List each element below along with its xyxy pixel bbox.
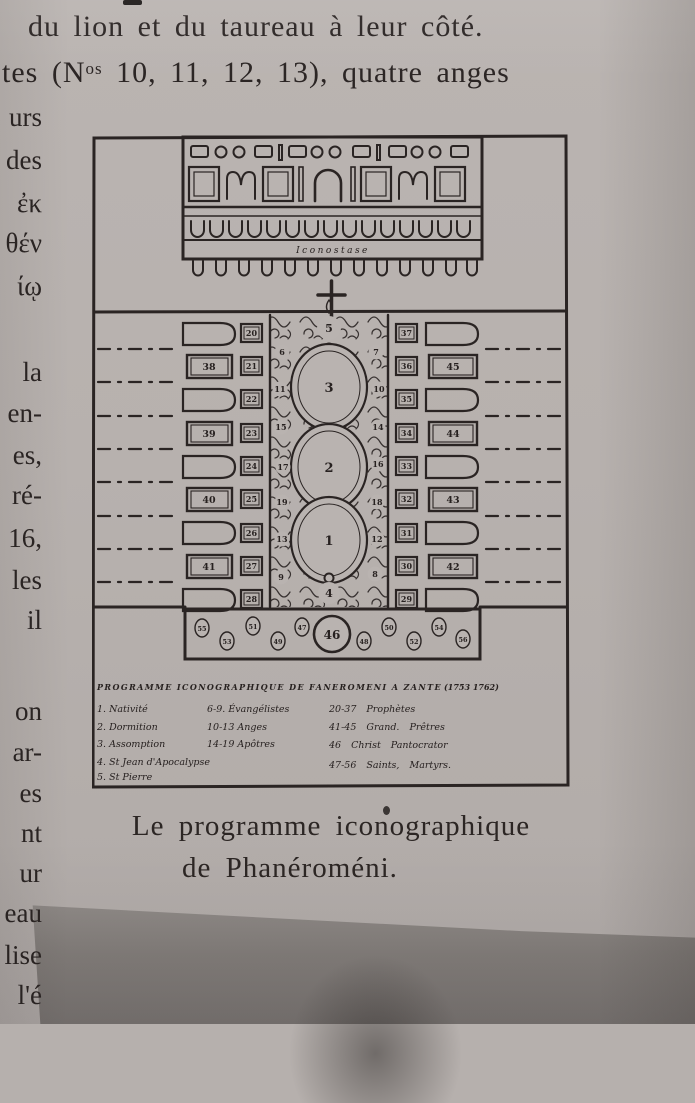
svg-text:30: 30 <box>401 561 413 571</box>
margin-fragment: θέν <box>6 228 42 259</box>
legend-years: (1753 1762) <box>444 682 499 692</box>
svg-text:20: 20 <box>246 328 258 338</box>
svg-text:45: 45 <box>446 362 459 373</box>
svg-text:34: 34 <box>401 428 413 438</box>
legend-entry: 2. Dormition <box>96 722 158 733</box>
left-inner-column: 20 21 22 23 24 25 26 27 28 <box>241 324 262 608</box>
figure-caption-line-1: Le programme iconographique <box>96 810 566 843</box>
text-line: 10, 11, 12, 13), quatre anges <box>103 56 510 89</box>
prophet-box: 22 <box>241 390 262 408</box>
prophet-box: 32 <box>396 490 417 508</box>
margin-fragment: on <box>15 696 42 727</box>
svg-text:33: 33 <box>401 461 413 471</box>
figure-legend: PROGRAMME ICONOGRAPHIQUE DE FANEROMENI A… <box>96 682 499 783</box>
figure-caption-line-2: de Phanéroméni. <box>100 852 480 885</box>
margin-fragment: eau <box>5 898 42 929</box>
margin-fragment: en- <box>8 398 42 429</box>
iconographic-diagram: Iconostase <box>92 134 570 792</box>
prophet-box: 34 <box>396 424 417 442</box>
grand-pretre-box: 40 <box>187 488 232 511</box>
svg-text:53: 53 <box>222 638 232 646</box>
legend-entry: 10-13 Anges <box>207 722 267 733</box>
svg-text:56: 56 <box>458 636 468 644</box>
margin-fragment: ré- <box>12 480 42 511</box>
legend-entry: 3. Assomption <box>97 739 165 750</box>
svg-text:50: 50 <box>384 624 394 632</box>
margin-fragment: ur <box>20 858 43 889</box>
svg-text:47: 47 <box>297 624 306 632</box>
svg-text:40: 40 <box>202 495 216 506</box>
iconostasis-top-row <box>191 145 468 160</box>
prophet-box: 37 <box>396 324 417 342</box>
text-line: du lion et du taureau à leur côté. <box>28 10 484 43</box>
prophet-box: 20 <box>241 324 262 342</box>
bottom-shadow-blob <box>283 948 468 1103</box>
svg-text:41: 41 <box>202 562 215 573</box>
ordinal-superscript: os <box>85 59 102 78</box>
svg-text:55: 55 <box>197 625 207 633</box>
svg-text:15: 15 <box>275 422 286 432</box>
pantocrator-medallion: 46 <box>314 616 350 652</box>
margin-fragment: 16, <box>8 523 42 554</box>
margin-fragment: nt <box>21 818 42 849</box>
prophet-box: 28 <box>241 590 262 608</box>
svg-text:49: 49 <box>273 638 283 646</box>
nave-strip: 5 3 2 1 4 6 11 15 17 19 13 9 7 10 14 16 … <box>270 300 388 607</box>
svg-text:52: 52 <box>409 638 418 646</box>
legend-entry: 47-56 Saints, Martyrs. <box>328 760 451 771</box>
prophet-box: 27 <box>241 557 262 575</box>
iconostasis-icon-row <box>189 167 465 201</box>
svg-text:54: 54 <box>434 624 444 632</box>
grand-pretre-box: 42 <box>429 555 477 578</box>
margin-fragment: es, <box>13 440 42 471</box>
legend-entry: 5. St Pierre <box>97 772 153 783</box>
legend-entry: 46 Christ Pantocrator <box>328 740 449 751</box>
svg-text:39: 39 <box>202 429 216 440</box>
legend-entry: 4. St Jean d'Apocalypse <box>96 757 210 768</box>
svg-text:29: 29 <box>401 594 413 604</box>
pendant-fringe <box>193 261 477 276</box>
margin-fragment: la <box>23 357 43 388</box>
svg-text:6: 6 <box>279 347 285 357</box>
photographed-book-page: { "page": { "top_lines": { "line1": "du … <box>0 0 695 1024</box>
svg-text:51: 51 <box>248 623 257 631</box>
grand-pretre-box: 44 <box>429 422 477 445</box>
svg-text:10: 10 <box>373 384 385 394</box>
svg-text:21: 21 <box>246 361 257 371</box>
prophet-box: 30 <box>396 557 417 575</box>
svg-text:23: 23 <box>246 428 258 438</box>
photo-background: du lion et du taureau à leur côté. tes (… <box>0 0 695 1024</box>
svg-text:44: 44 <box>446 429 460 440</box>
prophet-box: 35 <box>396 390 417 408</box>
iconostasis-label: Iconostase <box>295 246 370 256</box>
svg-text:35: 35 <box>401 394 412 404</box>
svg-text:36: 36 <box>401 361 413 371</box>
margin-fragment: ἐκ <box>17 188 42 219</box>
svg-text:9: 9 <box>278 572 284 582</box>
svg-text:26: 26 <box>246 528 258 538</box>
svg-text:7: 7 <box>373 347 379 357</box>
legend-entry: 1. Nativité <box>97 704 148 715</box>
medallion-number: 3 <box>324 381 333 396</box>
royal-door-arch <box>315 170 341 201</box>
medallion-number: 1 <box>324 534 333 549</box>
grand-pretre-box: 39 <box>187 422 232 445</box>
prophet-box: 29 <box>396 590 417 608</box>
dashed-lines-left <box>98 349 179 582</box>
svg-text:38: 38 <box>202 362 216 373</box>
prophet-box: 31 <box>396 524 417 542</box>
left-margin-text-fragments: urs des ἐκ θέν ίῳ la en- es, ré- 16, les… <box>0 0 46 1024</box>
legend-title: PROGRAMME ICONOGRAPHIQUE DE FANEROMENI A… <box>96 682 442 692</box>
svg-text:11: 11 <box>274 384 285 394</box>
svg-text:12: 12 <box>371 534 382 544</box>
svg-text:46: 46 <box>324 628 341 642</box>
right-inner-column: 37 36 35 34 33 32 31 30 29 <box>396 324 417 608</box>
svg-text:48: 48 <box>359 638 369 646</box>
margin-fragment: des <box>6 145 42 176</box>
svg-text:42: 42 <box>446 562 459 573</box>
prophet-box: 33 <box>396 457 417 475</box>
svg-text:43: 43 <box>446 495 459 506</box>
grand-pretre-box: 45 <box>429 355 477 378</box>
frieze-band: 55 53 51 49 47 48 50 52 54 56 46 <box>185 609 480 659</box>
medallion-number: 4 <box>325 587 333 600</box>
svg-text:32: 32 <box>401 494 412 504</box>
svg-text:19: 19 <box>276 497 288 507</box>
margin-fragment: les <box>12 565 42 596</box>
legend-entry: 20-37 Prophètes <box>328 704 415 715</box>
svg-text:24: 24 <box>246 461 258 471</box>
margin-fragment: es <box>20 778 43 809</box>
prophet-box: 26 <box>241 524 262 542</box>
margin-fragment: lise <box>5 940 43 971</box>
body-text-line-2: tes (Nos 10, 11, 12, 13), quatre anges <box>2 56 510 90</box>
svg-text:18: 18 <box>371 497 383 507</box>
photo-edge-mark <box>123 0 142 5</box>
medallion-number: 2 <box>324 461 333 476</box>
svg-text:37: 37 <box>401 328 412 338</box>
svg-text:13: 13 <box>276 534 288 544</box>
margin-fragment: ίῳ <box>17 271 42 302</box>
margin-fragment: l'é <box>18 980 42 1011</box>
margin-fragment: urs <box>9 102 42 133</box>
legend-entry: 14-19 Apôtres <box>207 739 275 750</box>
legend-entry: 6-9. Évangélistes <box>207 703 290 715</box>
ink-blot <box>383 806 390 815</box>
dashed-lines-right <box>486 349 562 582</box>
svg-text:31: 31 <box>401 528 412 538</box>
medallion-number: 5 <box>325 322 333 335</box>
prophet-box: 23 <box>241 424 262 442</box>
margin-fragment: ar- <box>13 737 42 768</box>
legend-entry: 41-45 Grand. Prêtres <box>328 722 445 733</box>
svg-text:28: 28 <box>246 594 258 604</box>
body-text-line-1: du lion et du taureau à leur côté. <box>28 10 484 44</box>
grand-pretre-box: 38 <box>187 355 232 378</box>
svg-text:16: 16 <box>372 459 384 469</box>
svg-text:22: 22 <box>246 394 257 404</box>
prophet-box: 24 <box>241 457 262 475</box>
svg-text:8: 8 <box>372 569 378 579</box>
svg-text:25: 25 <box>246 494 257 504</box>
grand-pretre-box: 43 <box>429 488 477 511</box>
svg-text:27: 27 <box>246 561 257 571</box>
svg-text:14: 14 <box>372 422 384 432</box>
prophet-box: 36 <box>396 357 417 375</box>
iconostasis-elevation: Iconostase <box>183 137 482 276</box>
margin-fragment: il <box>27 605 42 636</box>
iconostasis-arcade <box>191 221 470 237</box>
prophet-box: 25 <box>241 490 262 508</box>
svg-text:17: 17 <box>277 462 288 472</box>
grand-pretre-box: 41 <box>187 555 232 578</box>
prophet-box: 21 <box>241 357 262 375</box>
